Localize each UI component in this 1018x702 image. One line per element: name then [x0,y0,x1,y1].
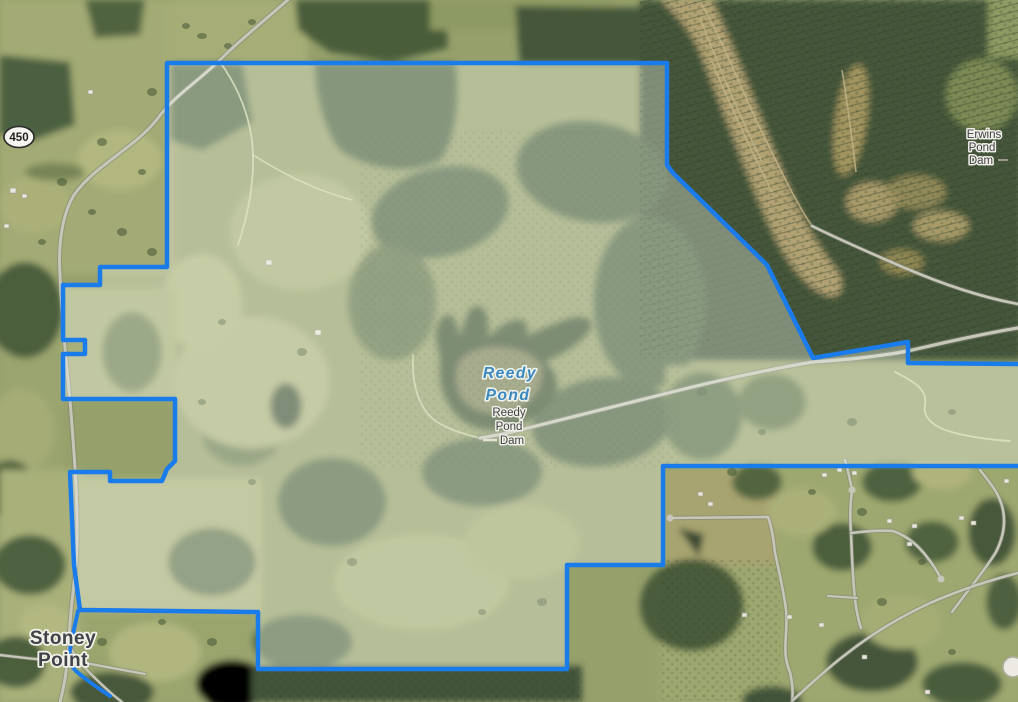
svg-text:Stoney: Stoney [30,628,96,649]
svg-text:Erwins: Erwins [967,129,1002,141]
svg-text:Reedy: Reedy [483,365,537,382]
svg-text:Point: Point [38,650,88,671]
svg-text:Pond: Pond [486,387,531,404]
water-tower-icon [1003,657,1018,677]
svg-text:Dam: Dam [969,155,993,167]
svg-text:Dam: Dam [500,435,524,447]
label-stoney-point: Stoney Point [30,628,96,671]
route-450-shield: 450 [4,127,34,148]
map-canvas[interactable]: 450 Erwins Pond Dam Reedy Pond Reedy Pon… [0,0,1018,702]
svg-text:Pond: Pond [496,421,523,433]
satellite-imagery[interactable]: 450 Erwins Pond Dam Reedy Pond Reedy Pon… [0,0,1018,702]
route-shield-number: 450 [9,132,28,144]
svg-text:Reedy: Reedy [492,407,525,419]
svg-text:Pond: Pond [969,142,996,154]
